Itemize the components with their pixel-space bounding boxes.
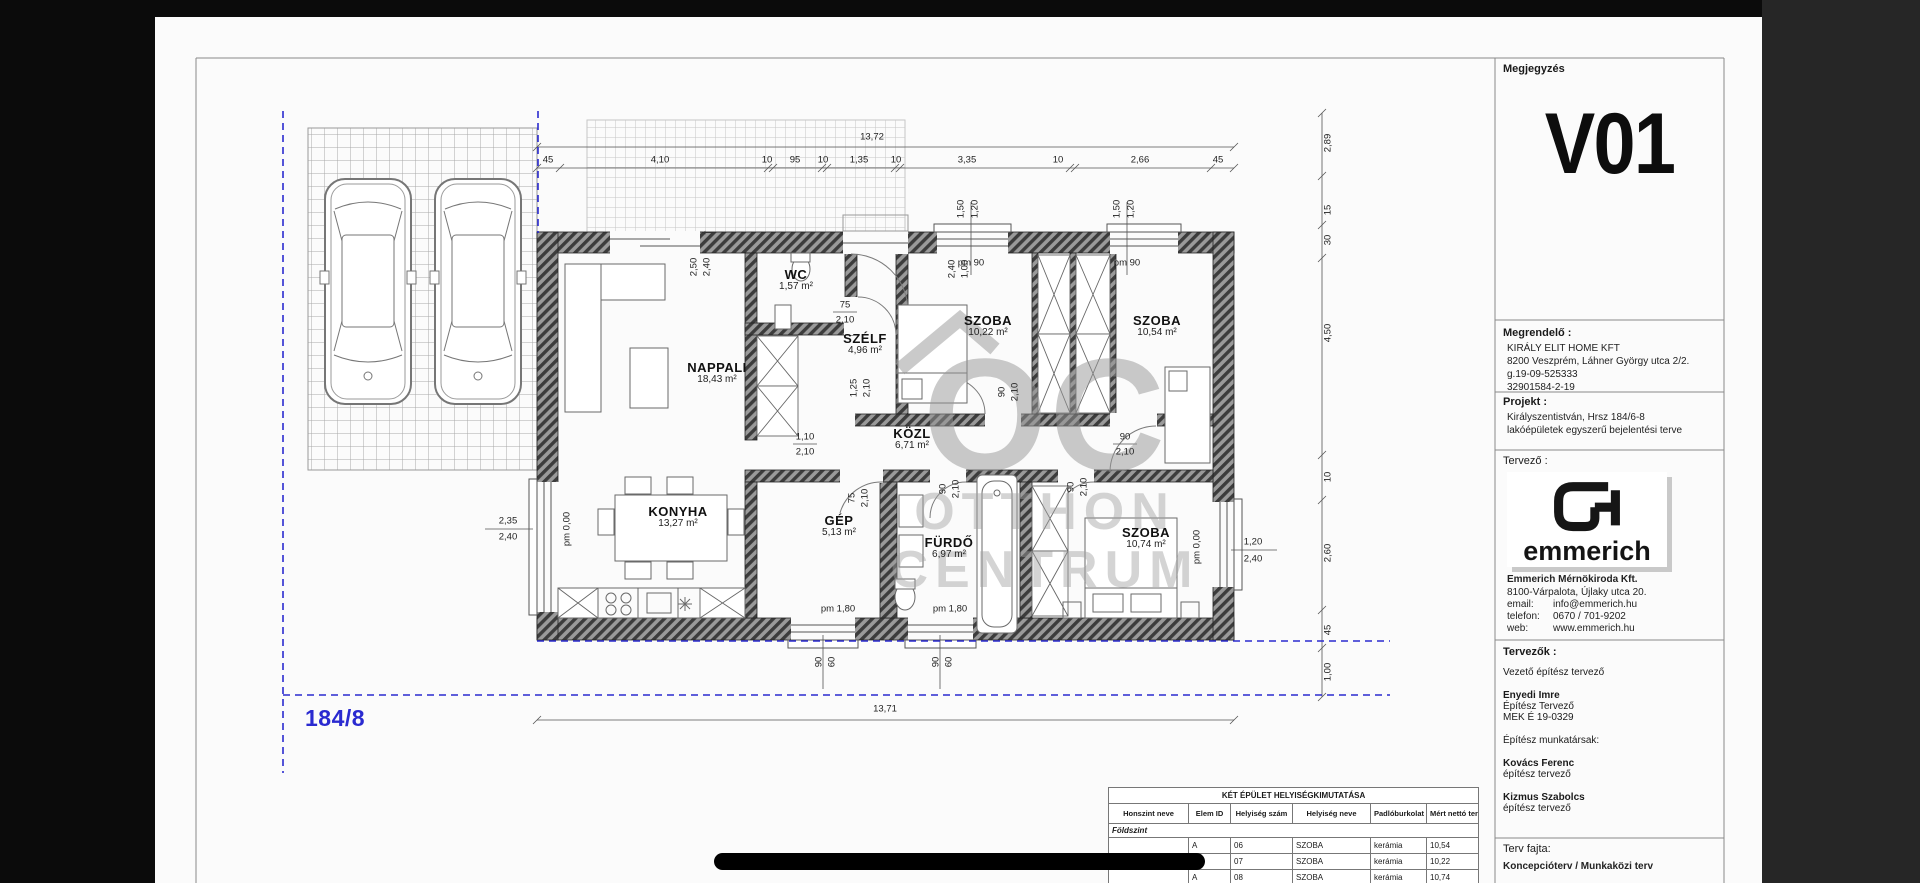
project-info: Királyszentistván, Hrsz 184/6-8 lakóépül…: [1507, 411, 1719, 437]
team-line: Vezető építész tervező: [1503, 667, 1715, 678]
room-area: 18,43 m²: [687, 375, 747, 386]
dimension-label: 2,10: [796, 447, 815, 458]
room-area: 1,57 m²: [779, 282, 813, 293]
dimension-label: 1,20: [1126, 200, 1137, 219]
dimension-label: 2,10: [951, 480, 962, 499]
dimension-label: 90: [997, 387, 1008, 398]
client-line: 32901584-2-19: [1507, 381, 1719, 394]
dimension-label: pm 1,80: [933, 604, 967, 615]
table-header-cell: Elem ID: [1189, 804, 1231, 824]
team-line: Építész munkatársak:: [1503, 735, 1715, 746]
contact-row: web: www.emmerich.hu: [1507, 623, 1719, 635]
team-line: Kizmus Szabolcs: [1503, 792, 1715, 803]
dimension-label: pm 90: [1114, 258, 1140, 269]
dimension-label: 75: [847, 493, 858, 504]
dimension-label: 2,66: [1131, 155, 1150, 166]
room-area: 10,74 m²: [1122, 540, 1170, 551]
table-cell: A: [1189, 870, 1231, 883]
dimension-label: 1,20: [1244, 537, 1263, 548]
dimension-label: 60: [944, 657, 955, 668]
team-label: Tervezők :: [1503, 646, 1557, 658]
viewer-right-edge: [1762, 0, 1920, 883]
notes-label: Megjegyzés: [1503, 63, 1565, 75]
dimension-label: 2,10: [860, 489, 871, 508]
dimension-label: 2,40: [702, 258, 713, 277]
team-line: Enyedi Imre: [1503, 690, 1715, 701]
dimension-label: 1,25: [849, 379, 860, 398]
dimension-label: 2,10: [836, 315, 855, 326]
room-area: 10,22 m²: [964, 328, 1012, 339]
dimension-label: 90: [1120, 432, 1131, 443]
dimension-label: 2,10: [1079, 478, 1090, 497]
dimension-label: 4,10: [651, 155, 670, 166]
dimension-label: 1,10: [796, 432, 815, 443]
team-line: Kovács Ferenc: [1503, 758, 1715, 769]
table-header-row: Honszint neveElem IDHelyiség számHelyisé…: [1109, 804, 1479, 824]
dimension-label: 1,50: [1112, 200, 1123, 219]
dimension-label: 15: [1323, 205, 1334, 216]
table-group-row: Földszint: [1109, 824, 1479, 838]
dimension-label: 2,10: [862, 379, 873, 398]
room-name: FÜRDŐ: [925, 536, 974, 550]
room-area: 6,97 m²: [925, 550, 974, 561]
dimension-label: 90: [1066, 482, 1077, 493]
table-cell: 06: [1231, 838, 1293, 854]
project-label: Projekt :: [1503, 396, 1547, 408]
team-line: építész tervező: [1503, 803, 1715, 814]
room-name: SZÉLF: [843, 332, 887, 346]
room-name: WC: [779, 268, 813, 282]
dimension-label: 2,40: [947, 260, 958, 279]
contact-value: www.emmerich.hu: [1553, 623, 1719, 635]
team-line: MEK É 19-0329: [1503, 712, 1715, 723]
dimension-label: 45: [1213, 155, 1224, 166]
parcel-label: 184/8: [305, 705, 365, 732]
room-name: NAPPALI: [687, 361, 747, 375]
client-line: KIRÁLY ELIT HOME KFT: [1507, 342, 1719, 355]
client-label: Megrendelő :: [1503, 327, 1571, 339]
dimension-label: 10: [891, 155, 902, 166]
dimension-label: 90: [814, 657, 825, 668]
room-label-f-rd-: FÜRDŐ6,97 m²: [925, 536, 974, 560]
dimension-label: 2,10: [1116, 447, 1135, 458]
dimension-label: 2,35: [499, 516, 518, 527]
dimension-label: 45: [1323, 625, 1334, 636]
table-cell: A: [1189, 838, 1231, 854]
table-cell: SZOBA: [1293, 854, 1371, 870]
dimension-label: 2,50: [689, 258, 700, 277]
table-cell: kerámia: [1371, 854, 1427, 870]
table-header-cell: Padlóburkolat: [1371, 804, 1427, 824]
room-name: SZOBA: [1122, 526, 1170, 540]
firm-name: Emmerich Mérnökiroda Kft.: [1507, 573, 1719, 586]
room-name: SZOBA: [1133, 314, 1181, 328]
dimension-label: 13,71: [873, 704, 897, 715]
plan-type-value: Koncepcióterv / Munkaközi terv: [1503, 860, 1653, 873]
room-name: KONYHA: [648, 505, 707, 519]
contact-label: email:: [1507, 599, 1553, 611]
table-header-cell: Mért nettó ter...: [1427, 804, 1479, 824]
dimension-label: 2,89: [1323, 134, 1334, 153]
room-name: GÉP: [822, 514, 856, 528]
dimension-label: 95: [790, 155, 801, 166]
contact-value: info@emmerich.hu: [1553, 599, 1719, 611]
dimension-label: 3,35: [958, 155, 977, 166]
table-row: A06SZOBAkerámia10,54: [1109, 838, 1479, 854]
client-line: g.19-09-525333: [1507, 368, 1719, 381]
dimension-label: pm 0,00: [562, 512, 573, 546]
table-header-cell: Helyiség szám: [1231, 804, 1293, 824]
contact-value: 0670 / 701-9202: [1553, 611, 1719, 623]
dimension-label: 90: [931, 657, 942, 668]
table-cell: [1109, 838, 1189, 854]
room-label-wc: WC1,57 m²: [779, 268, 813, 292]
dimension-label: 60: [827, 657, 838, 668]
room-area: 5,13 m²: [822, 528, 856, 539]
room-area: 13,27 m²: [648, 519, 707, 530]
dimension-label: 10: [1053, 155, 1064, 166]
redaction-bar: [714, 853, 1205, 870]
table-title: KÉT ÉPÜLET HELYISÉGKIMUTATÁSA: [1109, 788, 1479, 804]
table-header-cell: Honszint neve: [1109, 804, 1189, 824]
project-line: lakóépületek egyszerű bejelentési terve: [1507, 424, 1719, 437]
table-group-cell: Földszint: [1109, 824, 1479, 838]
dimension-label: 4,50: [1323, 324, 1334, 343]
dimension-label: 1,00: [1323, 663, 1334, 682]
viewer-top-edge: [0, 0, 1920, 17]
dimension-label: pm 0,00: [1192, 530, 1203, 564]
table-cell: kerámia: [1371, 870, 1427, 883]
dimension-label: 2,40: [1244, 554, 1263, 565]
table-cell: SZOBA: [1293, 870, 1371, 883]
dimension-label: pm 1,80: [821, 604, 855, 615]
room-label-g-p: GÉP5,13 m²: [822, 514, 856, 538]
client-line: 8200 Veszprém, Láhner György utca 2/2.: [1507, 355, 1719, 368]
dimension-label: 1,50: [956, 200, 967, 219]
table-cell: 10,74: [1427, 870, 1479, 883]
team-list: Vezető építész tervezőEnyedi ImreÉpítész…: [1503, 667, 1715, 814]
table-cell: 10,22: [1427, 854, 1479, 870]
room-label-szoba: SZOBA10,22 m²: [964, 314, 1012, 338]
screenshot-root: { "titleblock": { "notes_label": "Megjeg…: [0, 0, 1920, 883]
room-label-sz-lf: SZÉLF4,96 m²: [843, 332, 887, 356]
team-line: építész tervező: [1503, 769, 1715, 780]
firm-info: Emmerich Mérnökiroda Kft. 8100-Várpalota…: [1507, 573, 1719, 635]
dimension-label: 45: [543, 155, 554, 166]
dimension-label: 2,10: [1010, 383, 1021, 402]
table-cell: kerámia: [1371, 838, 1427, 854]
room-label-konyha: KONYHA13,27 m²: [648, 505, 707, 529]
room-label-szoba: SZOBA10,74 m²: [1122, 526, 1170, 550]
dimension-label: 2,60: [1323, 544, 1334, 563]
dimension-label: 10: [762, 155, 773, 166]
table-header-cell: Helyiség neve: [1293, 804, 1371, 824]
version-label: V01: [1509, 95, 1711, 194]
contact-label: telefon:: [1507, 611, 1553, 623]
viewer-left-edge: [0, 0, 155, 883]
emmerich-logo: emmerich: [1507, 472, 1667, 567]
plan-type-label: Terv fajta:: [1503, 843, 1551, 855]
page: OC OTTHON CENTRUM NAPPALI18,43 m²WC1,57 …: [155, 17, 1762, 883]
room-label-nappali: NAPPALI18,43 m²: [687, 361, 747, 385]
table-cell: SZOBA: [1293, 838, 1371, 854]
room-name: KÖZL: [893, 427, 930, 441]
dimension-label: 1,20: [970, 200, 981, 219]
contact-row: email: info@emmerich.hu: [1507, 599, 1719, 611]
project-line: Királyszentistván, Hrsz 184/6-8: [1507, 411, 1719, 424]
room-area: 6,71 m²: [893, 441, 930, 452]
dimension-label: 30: [1323, 235, 1334, 246]
table-cell: 07: [1231, 854, 1293, 870]
room-name: SZOBA: [964, 314, 1012, 328]
entry-direction-arrow: ←: [700, 222, 715, 239]
dimension-label: 90: [938, 484, 949, 495]
contact-row: telefon: 0670 / 701-9202: [1507, 611, 1719, 623]
table-cell: [1109, 870, 1189, 883]
room-area: 10,54 m²: [1133, 328, 1181, 339]
emmerich-wordmark: emmerich: [1511, 538, 1663, 565]
emmerich-logo-icon: [1527, 477, 1647, 535]
dimension-label: 10: [1323, 472, 1334, 483]
room-area: 4,96 m²: [843, 346, 887, 357]
dimension-label: 75: [840, 300, 851, 311]
dimension-label: 1,35: [850, 155, 869, 166]
table-cell: 08: [1231, 870, 1293, 883]
room-label-k-zl: KÖZL6,71 m²: [893, 427, 930, 451]
firm-address: 8100-Várpalota, Újlaky utca 20.: [1507, 586, 1719, 599]
contact-label: web:: [1507, 623, 1553, 635]
client-info: KIRÁLY ELIT HOME KFT 8200 Veszprém, Láhn…: [1507, 342, 1719, 394]
dimension-label: 10: [818, 155, 829, 166]
room-label-szoba: SZOBA10,54 m²: [1133, 314, 1181, 338]
team-line: Építész Tervező: [1503, 701, 1715, 712]
dimension-label: 13,72: [860, 132, 884, 143]
dimension-label: 2,40: [499, 532, 518, 543]
dimension-label: 1,00: [960, 260, 971, 279]
table-row: A08SZOBAkerámia10,74: [1109, 870, 1479, 883]
table-cell: 10,54: [1427, 838, 1479, 854]
designer-label: Tervező :: [1503, 455, 1548, 467]
